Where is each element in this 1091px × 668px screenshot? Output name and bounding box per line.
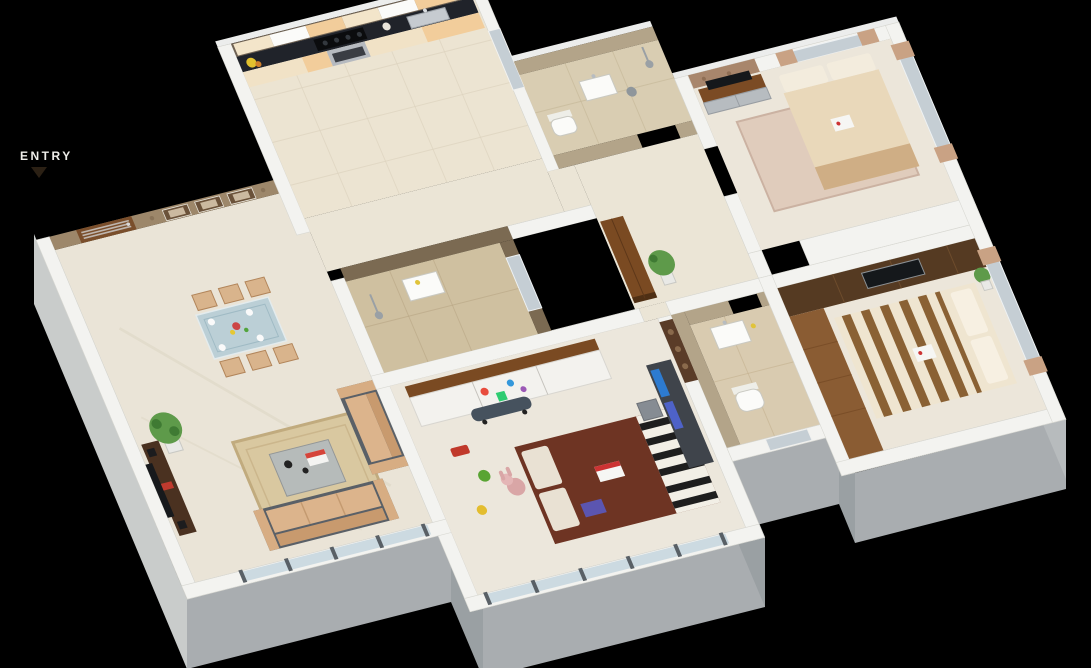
entry-label: ENTRY bbox=[20, 149, 73, 163]
floor-plan-scene: ENTRY bbox=[0, 0, 1091, 668]
floor-plan-render bbox=[0, 0, 1091, 668]
entry-arrow-icon bbox=[31, 167, 47, 178]
